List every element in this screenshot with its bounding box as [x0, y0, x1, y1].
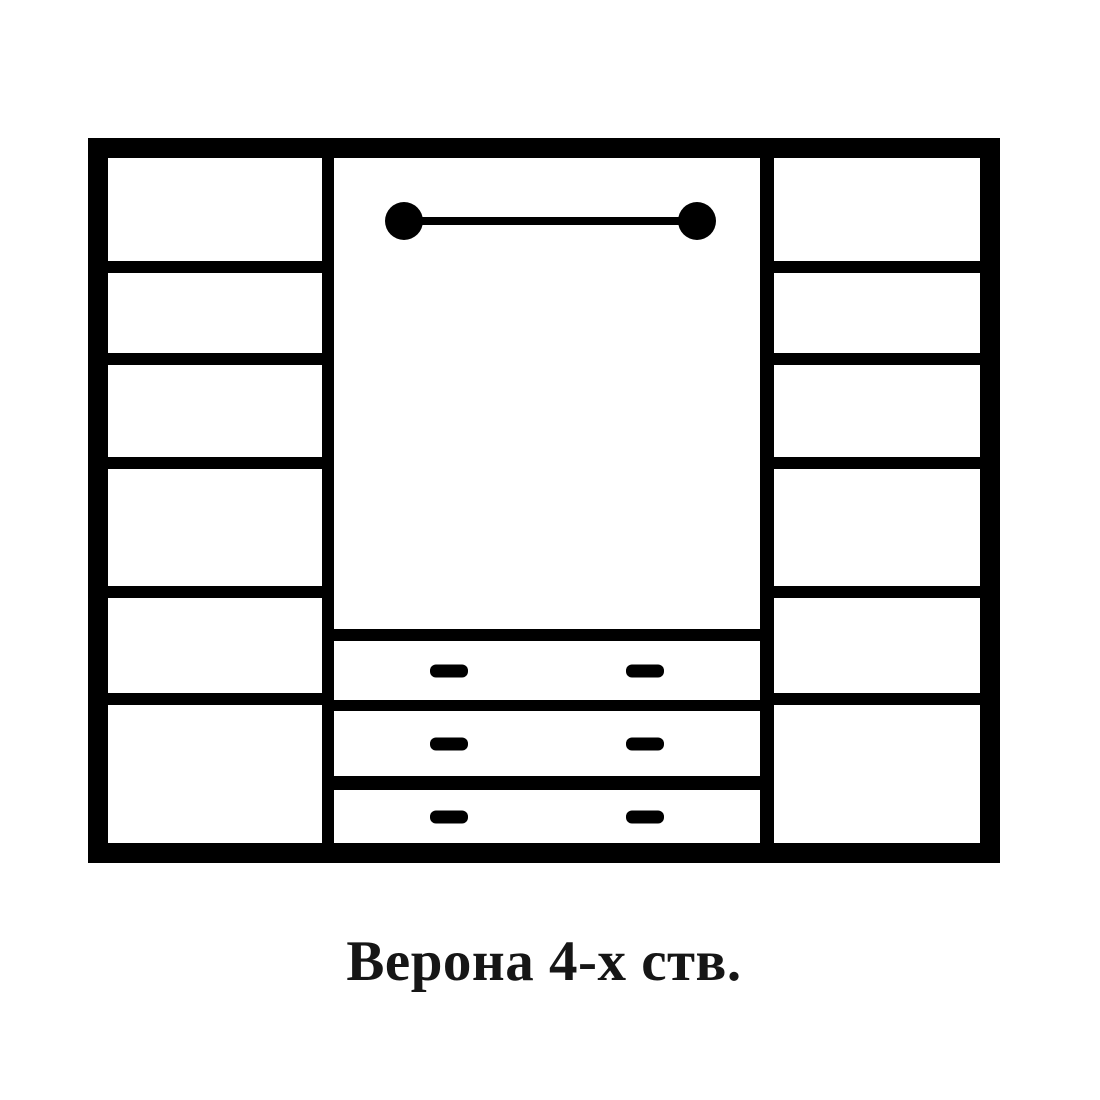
hanging-rod-end-right — [678, 202, 716, 240]
shelf-compartment — [108, 273, 322, 353]
hanging-rod-bar — [404, 217, 697, 225]
diagram-caption: Верона 4-х ств. — [88, 929, 1000, 994]
shelf-compartment — [108, 469, 322, 586]
shelf-compartment — [108, 365, 322, 457]
drawer — [334, 641, 760, 700]
left-shelf-column — [108, 158, 322, 843]
shelf-compartment — [774, 598, 980, 693]
drawer-handle — [430, 664, 468, 677]
drawer-handle — [626, 737, 664, 750]
shelf-divider — [774, 261, 980, 273]
shelf-divider — [108, 261, 322, 273]
drawer-handle — [430, 810, 468, 823]
shelf-divider — [108, 457, 322, 469]
shelf-compartment — [774, 469, 980, 586]
shelf-compartment — [774, 705, 980, 843]
right-shelf-column — [774, 158, 980, 843]
shelf-divider — [108, 353, 322, 365]
shelf-compartment — [774, 365, 980, 457]
shelf-divider — [108, 693, 322, 705]
shelf-divider — [108, 586, 322, 598]
shelf-compartment — [774, 273, 980, 353]
drawer-divider — [334, 629, 760, 641]
drawer-divider — [334, 700, 760, 711]
shelf-divider — [774, 586, 980, 598]
shelf-divider — [774, 353, 980, 365]
drawer — [334, 790, 760, 843]
shelf-compartment — [108, 598, 322, 693]
drawer-handle — [430, 737, 468, 750]
hanging-space — [334, 158, 760, 629]
shelf-compartment — [108, 705, 322, 843]
shelf-compartment — [108, 158, 322, 261]
drawer — [334, 711, 760, 776]
shelf-divider — [774, 457, 980, 469]
drawer-handle — [626, 810, 664, 823]
drawer-divider — [334, 776, 760, 790]
middle-section — [334, 158, 760, 843]
page: Верона 4-х ств. — [0, 0, 1100, 1100]
shelf-compartment — [774, 158, 980, 261]
hanging-rod-end-left — [385, 202, 423, 240]
right-section-divider — [760, 158, 774, 843]
wardrobe-diagram — [88, 138, 1000, 863]
shelf-divider — [774, 693, 980, 705]
drawer-handle — [626, 664, 664, 677]
left-section-divider — [322, 158, 334, 843]
